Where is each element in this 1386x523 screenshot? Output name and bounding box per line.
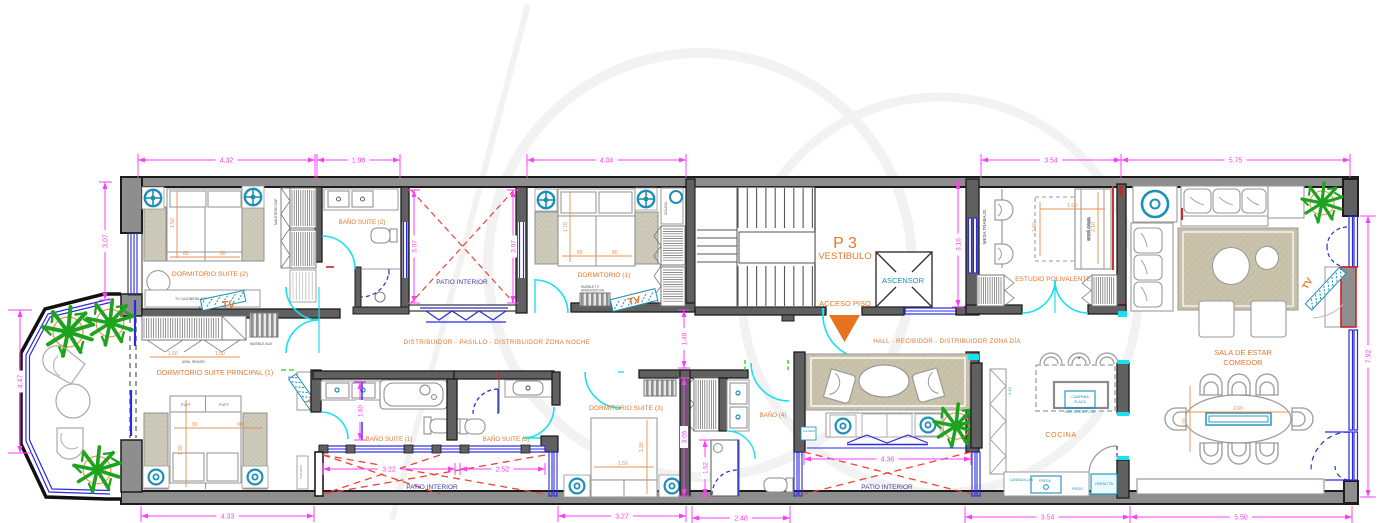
svg-text:90: 90 [237, 422, 243, 428]
svg-text:80: 80 [577, 250, 583, 256]
svg-text:5.75: 5.75 [1229, 158, 1243, 165]
svg-text:COCINA: COCINA [1045, 430, 1077, 439]
svg-text:3.54: 3.54 [1041, 515, 1055, 522]
svg-text:3.07: 3.07 [412, 240, 419, 253]
svg-text:DISTRIBUIDOR - PASILLO - D: DISTRIBUIDOR - PASILLO - DISTRIBUIDOR ZO… [404, 339, 591, 346]
svg-text:1.50: 1.50 [215, 351, 225, 357]
svg-text:PATIO INTERIOR: PATIO INTERIOR [436, 279, 488, 286]
svg-text:80: 80 [183, 251, 189, 257]
svg-text:PUFF: PUFF [219, 403, 230, 407]
svg-text:SALA DE ESTAR: SALA DE ESTAR [1214, 348, 1272, 357]
svg-text:MUE HORNO COL: MUE HORNO COL [1065, 410, 1096, 414]
svg-text:RADIADOR: RADIADOR [646, 375, 665, 379]
svg-text:TV: TV [222, 300, 235, 311]
svg-text:1.40: 1.40 [1032, 222, 1038, 232]
svg-text:ASCENSOR: ASCENSOR [882, 276, 925, 285]
svg-text:1.90: 1.90 [639, 442, 645, 452]
svg-text:1.20: 1.20 [1182, 418, 1188, 428]
svg-text:1.50: 1.50 [168, 351, 178, 357]
svg-text:MESA TRABAJO: MESA TRABAJO [982, 209, 987, 244]
svg-text:DORMITORIO SUITE (3): DORMITORIO SUITE (3) [589, 405, 663, 412]
svg-text:80: 80 [220, 251, 226, 257]
svg-text:COLADA: COLADA [664, 201, 668, 215]
svg-text:1.90: 1.90 [178, 445, 184, 455]
svg-text:1.60: 1.60 [1067, 203, 1077, 209]
svg-text:2.48: 2.48 [734, 516, 748, 523]
svg-text:3.05: 3.05 [682, 430, 689, 443]
svg-text:1.52: 1.52 [704, 462, 710, 474]
svg-text:1.50: 1.50 [618, 461, 628, 467]
svg-text:2.52: 2.52 [496, 467, 510, 474]
svg-text:P 3: P 3 [833, 235, 857, 252]
svg-text:90: 90 [192, 422, 198, 428]
svg-text:BAÑO SUITE (2): BAÑO SUITE (2) [339, 219, 386, 226]
svg-text:VESTIBULO: VESTIBULO [818, 251, 871, 262]
svg-text:DORMITORIO (1): DORMITORIO (1) [578, 272, 631, 279]
svg-text:1.40: 1.40 [682, 332, 689, 345]
svg-text:3.27: 3.27 [615, 514, 629, 521]
svg-text:4.47: 4.47 [18, 375, 25, 389]
svg-text:5.50: 5.50 [1234, 515, 1248, 522]
svg-text:3.07: 3.07 [103, 234, 110, 248]
svg-text:4.04: 4.04 [600, 158, 614, 165]
svg-text:BAÑO (4): BAÑO (4) [760, 412, 787, 419]
svg-text:ESTUDIO POLIVALENTE: ESTUDIO POLIVALENTE [1015, 276, 1091, 283]
svg-text:ALACENA: ALACENA [803, 429, 815, 433]
svg-text:APARADOR RA: APARADOR RA [581, 289, 605, 293]
svg-text:1.70: 1.70 [563, 222, 569, 232]
svg-text:LAVAVAJILLAS: LAVAVAJILLAS [1010, 478, 1034, 482]
svg-text:3.16: 3.16 [956, 238, 963, 251]
svg-text:FRIGO: FRIGO [1072, 487, 1083, 491]
svg-text:MALETERO SUP: MALETERO SUP [274, 198, 278, 225]
svg-text:PLACA: PLACA [1074, 400, 1086, 404]
svg-text:7.92: 7.92 [1366, 350, 1373, 364]
svg-text:3.07: 3.07 [511, 240, 518, 253]
svg-text:1.50: 1.50 [170, 218, 176, 228]
svg-text:MUEBLE AUX: MUEBLE AUX [250, 342, 273, 346]
svg-text:CAMPANA: CAMPANA [1071, 395, 1089, 399]
svg-text:PATIO INTERIOR: PATIO INTERIOR [406, 484, 458, 491]
svg-text:DORMITORIO SUITE PRINCIPAL (: DORMITORIO SUITE PRINCIPAL (1) [157, 370, 274, 377]
svg-text:1.98: 1.98 [352, 158, 366, 165]
svg-text:1.60: 1.60 [359, 405, 365, 417]
svg-text:4.33: 4.33 [221, 514, 235, 521]
svg-text:ARM. SRA/SR: ARM. SRA/SR [182, 360, 205, 364]
svg-text:ACCESO PISO: ACCESO PISO [819, 299, 871, 308]
svg-text:HALL - RECIBIDOR - DISTRIB: HALL - RECIBIDOR - DISTRIBUIDOR ZONA DÍA [873, 338, 1021, 345]
svg-text:BAÑO SUITE (1): BAÑO SUITE (1) [366, 436, 413, 443]
svg-text:TOALLERO: TOALLERO [299, 465, 303, 479]
svg-text:2.10: 2.10 [1007, 386, 1012, 395]
svg-text:4.32: 4.32 [220, 158, 234, 165]
svg-text:3.22: 3.22 [382, 467, 396, 474]
svg-text:HORNO TB: HORNO TB [1095, 482, 1114, 486]
svg-text:3.54: 3.54 [1044, 158, 1058, 165]
svg-text:2.10: 2.10 [1091, 222, 1097, 232]
svg-text:FREGA: FREGA [1039, 479, 1051, 483]
svg-text:DORMITORIO SUITE (2): DORMITORIO SUITE (2) [172, 271, 248, 278]
svg-text:BAÑO SUITE (3): BAÑO SUITE (3) [483, 436, 530, 443]
svg-text:80: 80 [612, 250, 618, 256]
svg-text:COMEDOR: COMEDOR [1223, 358, 1263, 367]
svg-text:PATIO INTERIOR: PATIO INTERIOR [861, 484, 913, 491]
svg-text:2.60: 2.60 [1233, 406, 1243, 412]
svg-text:4.36: 4.36 [881, 457, 895, 464]
